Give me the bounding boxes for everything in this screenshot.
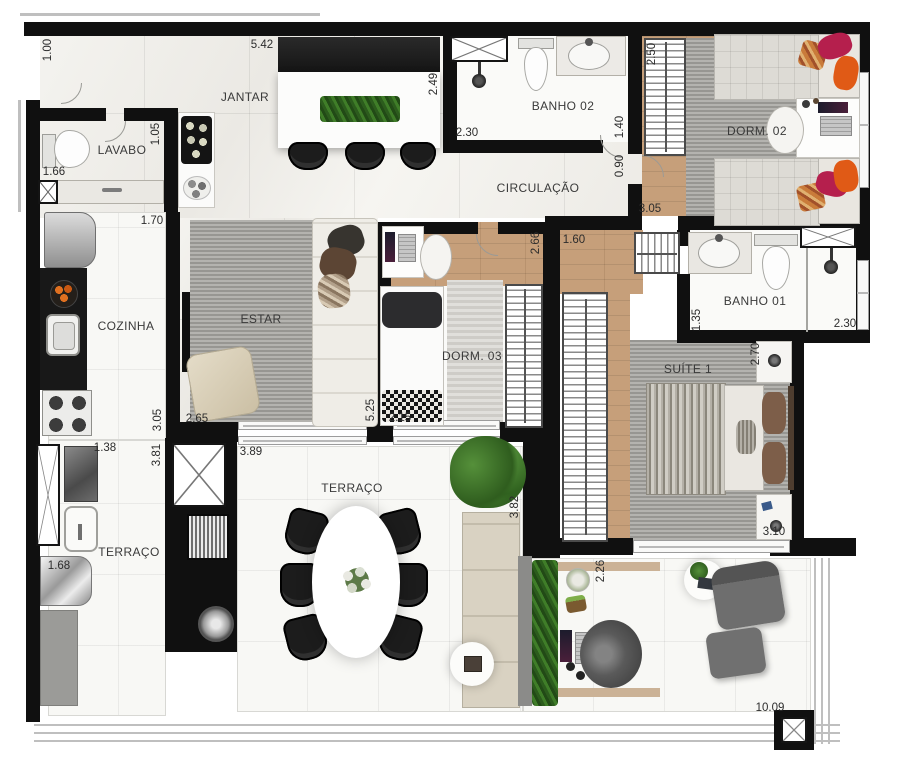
dorm03-desk-chair [420,234,452,280]
lounge-round-chair [580,620,642,688]
measure-servico-height: 3.81 [151,444,163,466]
table-flowers [338,564,376,598]
measure-servico-width: 1.38 [94,442,116,454]
wall-banho01-left-b [677,274,690,330]
room-label-jantar: JANTAR [221,90,269,104]
measure-banho01-height: 1.35 [691,309,703,331]
measure-cozinha-pass: 1.70 [141,215,163,227]
measure-dorm03-bed: 2.15 [389,412,411,424]
wall-banho02-bottom [443,140,603,153]
dorm02-desk-item [813,98,819,104]
lavabo-shaft [38,180,58,204]
suite-headboard [788,386,794,490]
measure-circulacao-width: 3.05 [639,203,661,215]
deck-strip-bottom [558,688,660,697]
measure-total-width: 10.09 [756,702,785,714]
room-label-dorm02: DORM. 02 [727,124,787,138]
washer-dryer-stack [64,446,98,502]
dumbbell [576,671,585,680]
railing-bottom [34,724,840,726]
banho01-shower-box [800,226,856,248]
room-label-lavabo: LAVABO [98,143,147,157]
bbq-grill [187,514,229,560]
banho02-faucet [585,38,593,46]
slab-line-left [18,100,21,212]
banho01-faucet [715,234,723,242]
measure-jantar-width: 5.42 [251,39,273,51]
dorm03-laptop-keyboard [398,234,416,262]
measure-estar-height: 5.25 [365,399,377,421]
suite-wood-strip [608,294,630,540]
suite-window [633,540,790,553]
banho01-toilet-tank [754,234,798,246]
room-label-banho01: BANHO 01 [724,294,787,308]
lavabo-faucet [102,188,122,192]
measure-lavabo-width: 1.05 [150,123,162,145]
lounge-planter-wall [518,556,532,706]
measure-terraco-height: 3.82 [509,496,521,518]
floor-plan: JANTAR LAVABO BANHO 02 DORM. 02 CIRCULAÇ… [0,0,900,768]
banho01-shower-glass [806,248,808,332]
room-label-terraco: TERRAÇO [321,481,382,495]
lounge-ottoman [705,626,767,679]
measure-dorm02-door: 0.90 [614,155,626,177]
suite-throw-pillow [736,420,756,454]
fridge [44,212,96,268]
sofa-pillow-pattern [316,272,351,309]
room-label-estar: ESTAR [240,312,281,326]
estar-terrace-frame [238,436,367,445]
measure-suite-height: 2.70 [750,343,762,365]
measure-terraco-width: 3.89 [240,446,262,458]
banho02-sink-basin [568,42,610,70]
measure-estar-width: 2.65 [186,413,208,425]
measure-lounge-height: 2.26 [595,560,607,582]
counter-appliance [183,176,211,200]
slab-line-top [20,13,320,16]
dorm03-laptop-screen [385,232,395,262]
dorm02-laptop-screen [818,102,848,113]
lounge-flower-pot [566,568,590,592]
corner-column-shaft [781,717,807,743]
suite-pillow [762,392,786,434]
laundry-tub-faucet [78,524,82,540]
wall-cozinha-estar [166,212,180,440]
dorm02-laptop-keyboard [820,116,852,136]
dining-island-counter [278,37,440,72]
wall-lavabo-top-a [40,108,106,121]
measure-lavabo-height: 1.66 [43,166,65,178]
stove [42,390,92,436]
room-label-terraco-servico: TERRAÇO [98,545,159,559]
dorm03-pillow [382,292,442,328]
measure-banho02-width: 1.40 [614,116,626,138]
room-label-suite1: SUÍTE 1 [664,362,712,376]
kitchen-sink-basin [53,322,75,350]
dorm02-desk-item [802,100,810,108]
banho01-shower-head [824,260,838,274]
lounge-armchair [710,559,787,631]
room-label-cozinha: COZINHA [98,319,155,333]
measure-washer-width: 1.68 [48,560,70,572]
measure-suite-width: 3.10 [763,526,785,538]
lounge-laptop-screen [560,630,572,662]
vertical-garden [532,560,558,706]
servico-counter [40,610,78,706]
duct-shaft [172,443,226,507]
railing-right [828,558,830,744]
dorm03-closet [505,284,543,428]
measure-banho01-width: 2.30 [834,318,856,330]
railing-right [821,558,823,744]
railing-bottom [34,732,840,734]
banho02-shower-head [472,74,486,88]
suite-pillow [762,442,786,484]
banho02-shower-box [450,36,508,62]
banho01-window [857,260,869,330]
suite-bed-duvet [646,383,726,495]
servico-shaft-column [36,444,60,546]
side-table-item [464,656,482,672]
suite-hall-rack [634,232,680,274]
suite-closet [562,292,608,542]
wall-circ-dorm02-upper [628,36,642,154]
table-plant-runner [320,96,400,122]
lavabo-sink-counter [56,180,164,204]
measure-jantar-depth: 2.49 [428,73,440,95]
suite-lamp [768,354,781,367]
dumbbell [566,662,575,671]
measure-entry-height: 1.00 [42,39,54,61]
measure-suite-hall: 1.60 [563,234,585,246]
pouf [185,345,262,423]
measure-banho02-shower: 2.30 [456,127,478,139]
railing-right [814,558,816,744]
room-label-dorm03: DORM. 03 [442,349,502,363]
room-label-circulacao: CIRCULAÇÃO [497,181,580,195]
bbq-sink [198,606,234,642]
measure-cozinha-height: 3.05 [152,409,164,431]
fruit-bowl [50,280,78,308]
wall-lavabo-right [164,108,178,212]
banho01-sink-basin [698,238,740,268]
cooktop [181,116,212,164]
measure-dorm02-closet: 2.50 [646,43,658,65]
room-label-banho02: BANHO 02 [532,99,595,113]
lounge-tray [565,594,587,613]
railing-bottom [34,740,840,742]
measure-dorm03-height: 2.66 [530,232,542,254]
